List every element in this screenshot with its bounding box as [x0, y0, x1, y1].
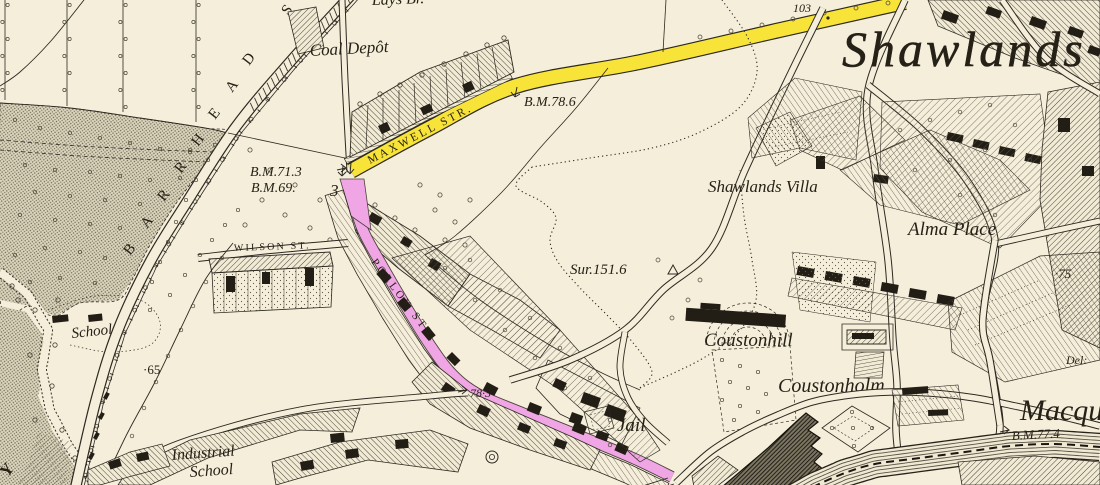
svg-text:B.M.78.6: B.M.78.6 [524, 95, 576, 110]
svg-text:·65: ·65 [143, 362, 160, 377]
svg-text:103: 103 [793, 1, 811, 15]
svg-text:·75: ·75 [1055, 266, 1072, 281]
svg-text:School: School [189, 461, 234, 481]
svg-text:Sur.151.6: Sur.151.6 [570, 262, 627, 278]
svg-text:Shawlands: Shawlands [842, 21, 1086, 77]
svg-text:78·3: 78·3 [470, 386, 491, 400]
svg-text:Shawlands Villa: Shawlands Villa [708, 177, 818, 196]
svg-text:B.M.77.4: B.M.77.4 [1011, 425, 1060, 443]
svg-text:Alma Place: Alma Place [906, 219, 996, 240]
svg-text:B.M.69.: B.M.69. [251, 181, 296, 196]
svg-text:Macqu: Macqu [1019, 394, 1100, 427]
svg-text:Del:: Del: [1065, 353, 1087, 367]
svg-text:B.M.71.3: B.M.71.3 [250, 165, 302, 180]
svg-text:Coustonhill: Coustonhill [704, 330, 793, 351]
svg-text:Jail: Jail [617, 415, 646, 436]
